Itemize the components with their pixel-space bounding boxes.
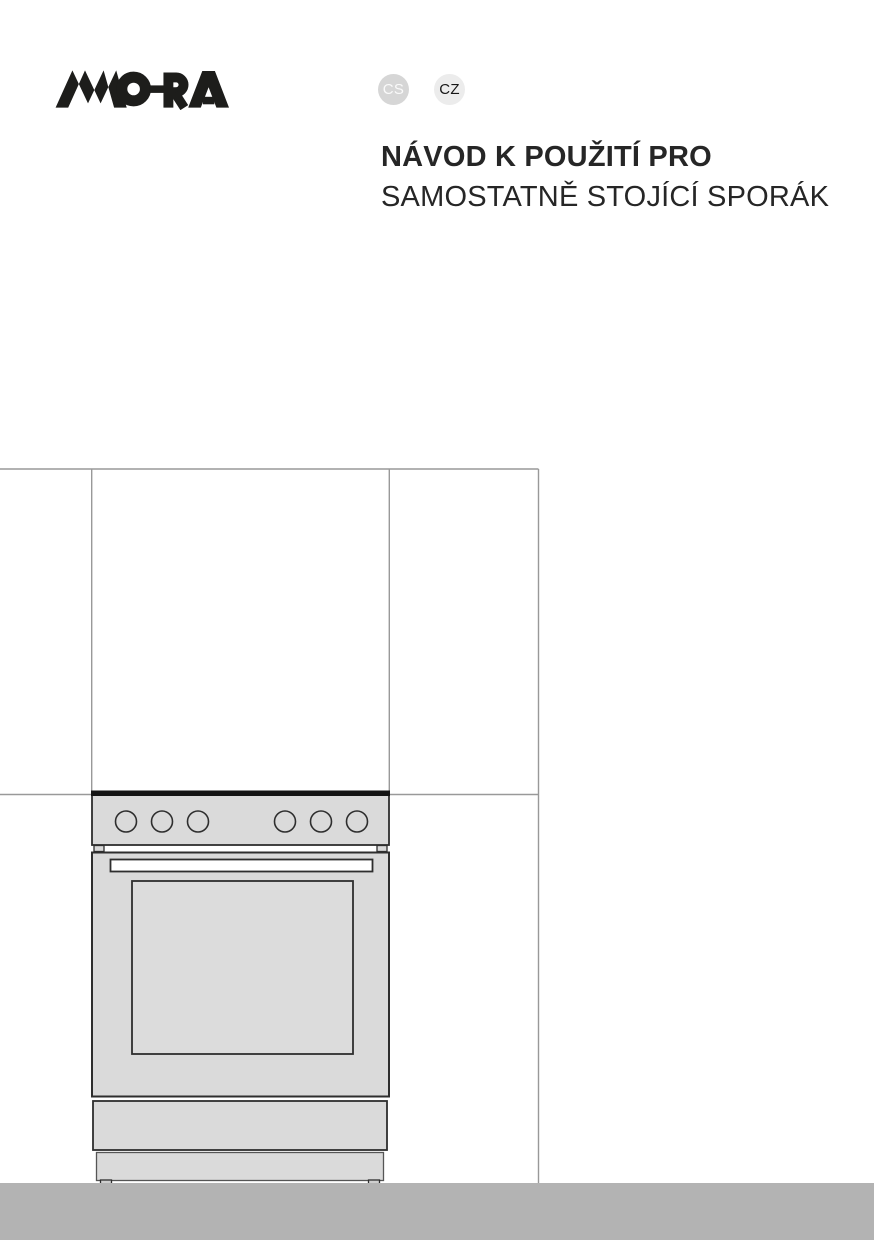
control-knob	[311, 811, 332, 832]
cooktop-edge-bar	[91, 791, 390, 797]
control-knob	[116, 811, 137, 832]
kitchen-cooker-illustration	[0, 0, 874, 1240]
door-hinge-right	[377, 846, 387, 852]
control-knob	[347, 811, 368, 832]
door-hinge-left	[94, 846, 104, 852]
storage-drawer	[93, 1101, 387, 1150]
door-window	[132, 881, 353, 1054]
manual-cover-page: CS CZ NÁVOD K POUŽITÍ PRO SAMOSTATNĚ STO…	[0, 0, 874, 1240]
footer-bar	[0, 1183, 874, 1240]
door-handle	[111, 860, 373, 872]
stove-drawing	[91, 791, 390, 1186]
control-knob	[152, 811, 173, 832]
plinth	[97, 1153, 384, 1181]
control-knob	[275, 811, 296, 832]
control-knob	[188, 811, 209, 832]
